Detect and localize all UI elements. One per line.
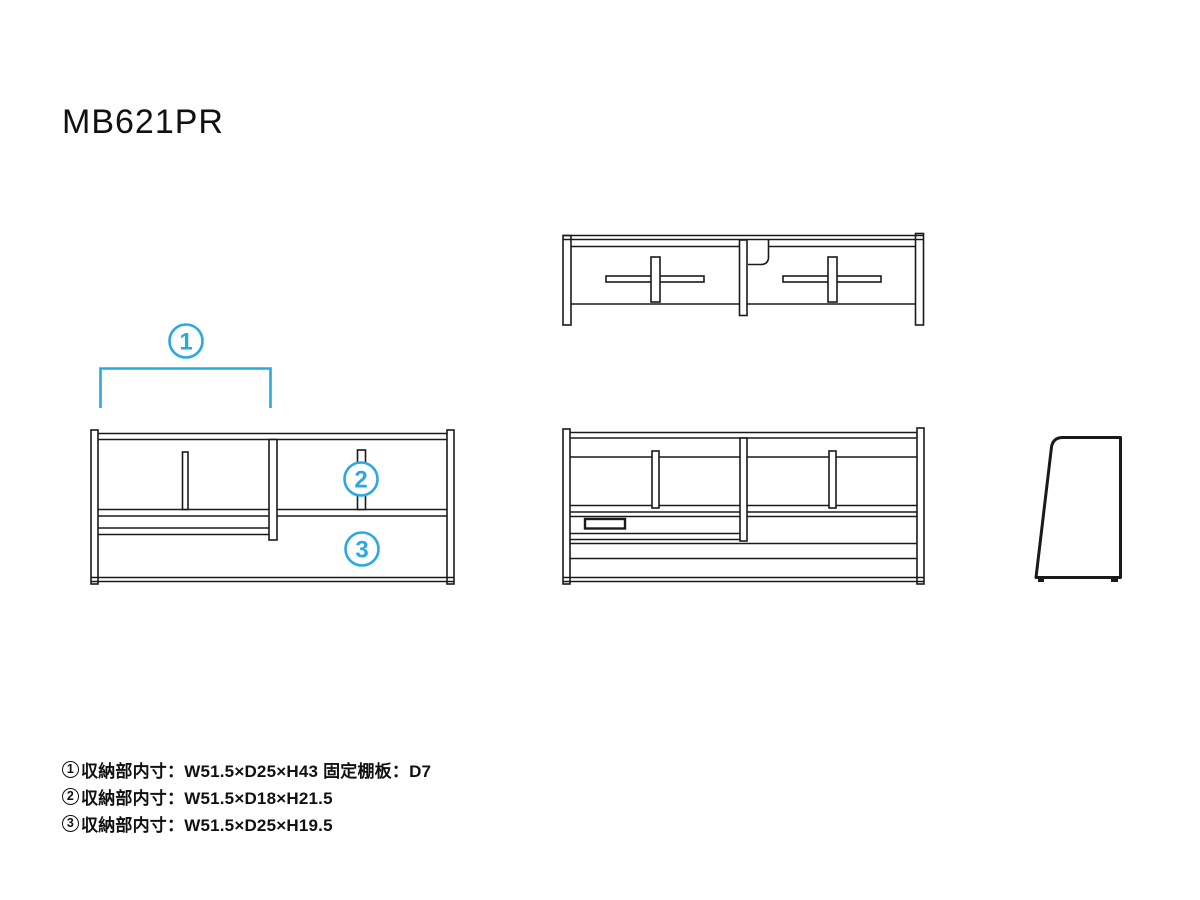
callout-number-1: 1 [179, 329, 192, 356]
top-view-center-divider [740, 240, 748, 316]
side-profile-foot-right [1111, 578, 1118, 583]
side-profile-foot-left [1038, 578, 1044, 583]
front-view [91, 430, 454, 584]
dimension-bracket-1 [101, 369, 271, 409]
front-right-side-panel [447, 430, 454, 584]
note-number-circle-3: 3 [62, 815, 79, 832]
section-left-side-panel [563, 429, 570, 584]
front-left-side-panel [91, 430, 98, 584]
top-view-right-side-panel [916, 234, 924, 326]
dimension-notes: 1 収納部内寸：W51.5×D25×H43 固定棚板：D7 2 収納部内寸：W5… [62, 756, 431, 837]
cross-marker-right [783, 257, 881, 302]
note-number-circle-1: 1 [62, 761, 79, 778]
note-text-2: 収納部内寸：W51.5×D18×H21.5 [81, 784, 333, 809]
section-center-divider [740, 438, 747, 541]
callout-number-3: 3 [355, 537, 368, 564]
cross-marker-left [606, 257, 704, 302]
flap-handle [585, 519, 625, 529]
top-view [563, 234, 924, 326]
front-center-divider [269, 440, 277, 541]
top-view-left-side-panel [563, 236, 571, 326]
note-number-circle-2: 2 [62, 788, 79, 805]
section-partition-left [652, 451, 659, 508]
section-partition-right [829, 451, 836, 508]
note-text-3: 収納部内寸：W51.5×D25×H19.5 [81, 811, 333, 836]
cross-marker-right-vbar [828, 257, 837, 302]
note-text-1: 収納部内寸：W51.5×D25×H43 固定棚板：D7 [81, 757, 431, 782]
cable-notch [748, 240, 769, 265]
front-view-callouts: 1 2 3 [101, 325, 379, 566]
note-line-2: 2 収納部内寸：W51.5×D18×H21.5 [62, 783, 431, 810]
front-shelf-partition-left [183, 452, 189, 510]
note-line-3: 3 収納部内寸：W51.5×D25×H19.5 [62, 810, 431, 837]
section-view [563, 428, 924, 584]
note-line-1: 1 収納部内寸：W51.5×D25×H43 固定棚板：D7 [62, 756, 431, 783]
dimension-diagram-page: MB621PR [0, 0, 1200, 900]
callout-number-2: 2 [354, 467, 367, 494]
section-right-side-panel [917, 428, 924, 584]
side-profile-view [1036, 438, 1121, 583]
cross-marker-left-vbar [651, 257, 660, 302]
side-profile-outline [1036, 438, 1121, 578]
